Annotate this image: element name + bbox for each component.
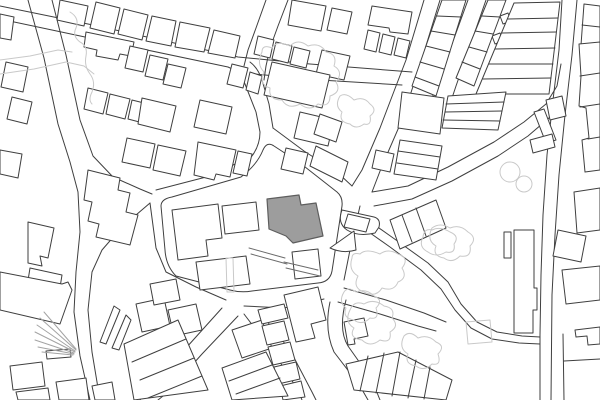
buildings-shape [194,142,236,180]
road-edges-shape [344,288,446,322]
buildings-shape [194,100,232,134]
buildings-shape [146,16,176,46]
road-edges-shape [356,223,540,344]
buildings-shape [372,150,394,172]
buildings-shape [57,0,88,26]
buildings-shape [553,230,586,262]
terrace-rows-outline [394,140,442,180]
light-features-shape [500,162,520,182]
light-features-shape [337,95,374,127]
buildings-shape [284,287,326,342]
buildings-shape [84,170,138,245]
buildings-shape [398,92,444,134]
light-features-shape [351,251,405,294]
light-features-shape [0,50,72,60]
buildings-shape [7,97,32,124]
buildings-shape [106,94,130,119]
buildings-shape [175,22,210,52]
road-edges-shape [564,359,600,361]
road-edges-shape [563,334,564,400]
buildings-shape [138,98,176,132]
buildings-shape [1,62,28,92]
buildings-shape [546,96,566,120]
buildings-shape [290,47,310,68]
buildings-shape [153,145,186,176]
buildings-shape [222,202,259,234]
buildings-shape [208,30,240,58]
buildings-shape [530,134,555,153]
buildings-shape [118,9,148,40]
buildings-shape [122,138,155,168]
buildings-shape [90,2,120,34]
buildings-shape [514,230,537,333]
buildings-shape [281,148,308,174]
buildings-shape [268,342,295,365]
buildings-shape [0,14,14,40]
buildings-shape [575,327,600,345]
buildings-shape [327,8,352,34]
light-features-shape [516,176,532,192]
map-canvas [0,0,600,400]
buildings-shape [292,249,321,279]
buildings-shape [0,150,22,178]
buildings-shape [246,72,262,94]
buildings-shape [56,378,89,400]
buildings-shape [10,362,45,390]
road-edges-shape [551,0,577,400]
buildings-shape [504,232,511,258]
terrace-rows-outline [390,200,446,249]
road-edges-shape [362,216,540,337]
buildings-shape [379,34,395,55]
site-plan-map [0,0,600,400]
buildings-shape [92,382,115,400]
buildings-shape [364,30,380,52]
buildings-shape [150,279,180,305]
buildings-shape [28,222,54,266]
buildings-shape [288,0,326,31]
buildings-shape [368,6,412,34]
buildings-shape [562,266,600,304]
buildings-shape [84,88,108,114]
buildings-shape [262,321,289,345]
buildings-shape [16,388,50,400]
buildings-shape [574,188,600,233]
buildings-shape [196,256,250,290]
